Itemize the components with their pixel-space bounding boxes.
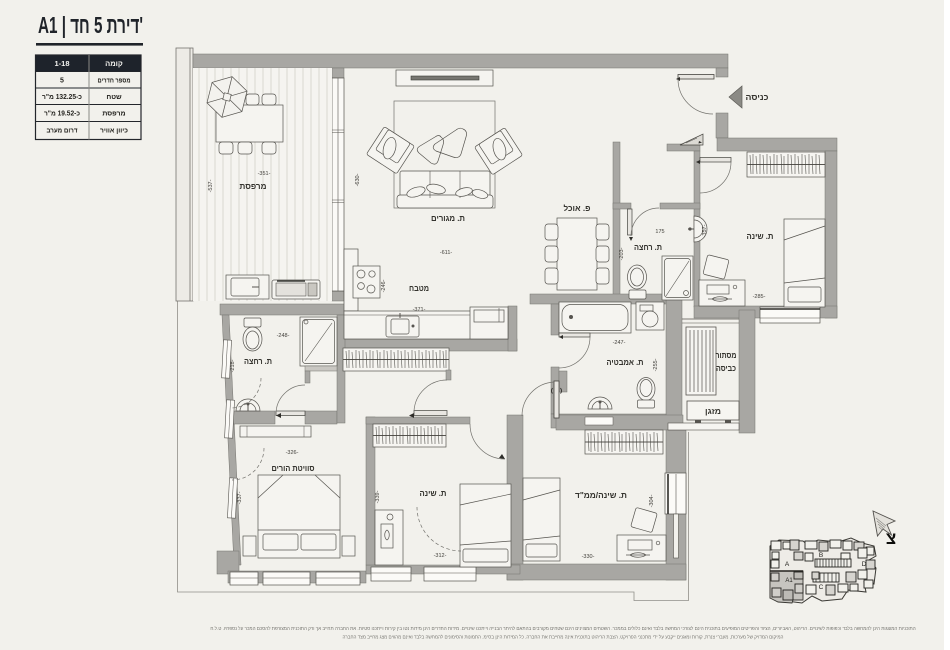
svg-text:175: 175 bbox=[655, 229, 664, 235]
svg-text:-371-: -371- bbox=[413, 307, 426, 313]
svg-text:-304-: -304- bbox=[649, 494, 655, 507]
svg-text:ת. רחצה: ת. רחצה bbox=[634, 243, 662, 252]
svg-text:-203-: -203- bbox=[619, 247, 625, 260]
svg-text:המיקום המדויק של מערכות, מעברי: המיקום המדויק של מערכות, מעברי צנרת, קור… bbox=[343, 635, 784, 640]
svg-text:C: C bbox=[819, 584, 824, 591]
svg-text:צ: צ bbox=[886, 529, 896, 548]
svg-text:A: A bbox=[785, 561, 790, 568]
svg-text:קומה: קומה bbox=[105, 59, 123, 68]
svg-text:כניסה: כניסה bbox=[746, 93, 769, 102]
svg-text:A1: A1 bbox=[785, 578, 793, 584]
svg-text:ת. אמבטיה: ת. אמבטיה bbox=[607, 358, 644, 367]
svg-text:-312-: -312- bbox=[434, 553, 447, 559]
svg-text:מרפסת: מרפסת bbox=[102, 111, 125, 118]
svg-text:B: B bbox=[819, 552, 823, 559]
svg-text:מסתור: מסתור bbox=[716, 351, 737, 360]
svg-text:כ-132.25 מ"ר: כ-132.25 מ"ר bbox=[42, 94, 82, 101]
svg-text:סוויטת הורים: סוויטת הורים bbox=[272, 464, 315, 473]
svg-text:ת. שינה/ממ"ד: ת. שינה/ממ"ד bbox=[575, 491, 627, 500]
svg-text:שטח: שטח bbox=[106, 94, 122, 101]
svg-text:-611-: -611- bbox=[440, 250, 453, 256]
svg-text:התוכניות המוצגות הינן להמחשה ב: התוכניות המוצגות הינן להמחשה בלבד וכפופו… bbox=[210, 626, 915, 631]
svg-text:-357-: -357- bbox=[702, 224, 708, 237]
svg-text:-537-: -537- bbox=[208, 179, 214, 192]
svg-text:ת. שינה: ת. שינה bbox=[747, 232, 774, 241]
svg-text:פ. אוכל: פ. אוכל bbox=[564, 204, 591, 213]
svg-text:-630-: -630- bbox=[355, 173, 361, 186]
svg-text:ת. שינה: ת. שינה bbox=[420, 489, 447, 498]
svg-text:-337-: -337- bbox=[237, 491, 243, 504]
svg-text:1-18: 1-18 bbox=[54, 59, 69, 68]
svg-text:מזגן: מזגן bbox=[705, 407, 721, 416]
svg-text:-246-: -246- bbox=[381, 279, 387, 292]
svg-text:-351-: -351- bbox=[258, 171, 271, 177]
svg-text:D: D bbox=[862, 561, 867, 568]
svg-text:-285-: -285- bbox=[753, 294, 766, 300]
svg-text:-326-: -326- bbox=[286, 450, 299, 456]
svg-text:כ-19.52 מ"ר: כ-19.52 מ"ר bbox=[44, 111, 80, 118]
svg-text:A1 | דירת 5 חד': A1 | דירת 5 חד' bbox=[38, 12, 143, 38]
svg-text:כביסה: כביסה bbox=[716, 364, 736, 373]
svg-text:-247-: -247- bbox=[613, 340, 626, 346]
svg-text:ת. מגורים: ת. מגורים bbox=[431, 214, 465, 223]
svg-text:ת. רחצה: ת. רחצה bbox=[244, 357, 272, 366]
svg-text:-255-: -255- bbox=[653, 358, 659, 371]
svg-text:דרום מערב: דרום מערב bbox=[47, 128, 78, 135]
svg-text:-330-: -330- bbox=[582, 554, 595, 560]
svg-text:כיוון אוויר: כיוון אוויר bbox=[100, 128, 128, 135]
svg-text:מרפסת: מרפסת bbox=[240, 182, 267, 191]
svg-text:-218-: -218- bbox=[230, 359, 236, 372]
svg-text:5: 5 bbox=[60, 78, 64, 85]
svg-text:-339-: -339- bbox=[375, 490, 381, 503]
svg-text:מטבח: מטבח bbox=[409, 284, 429, 293]
svg-text:-248-: -248- bbox=[277, 333, 290, 339]
svg-text:מספר חדרים: מספר חדרים bbox=[98, 78, 131, 85]
